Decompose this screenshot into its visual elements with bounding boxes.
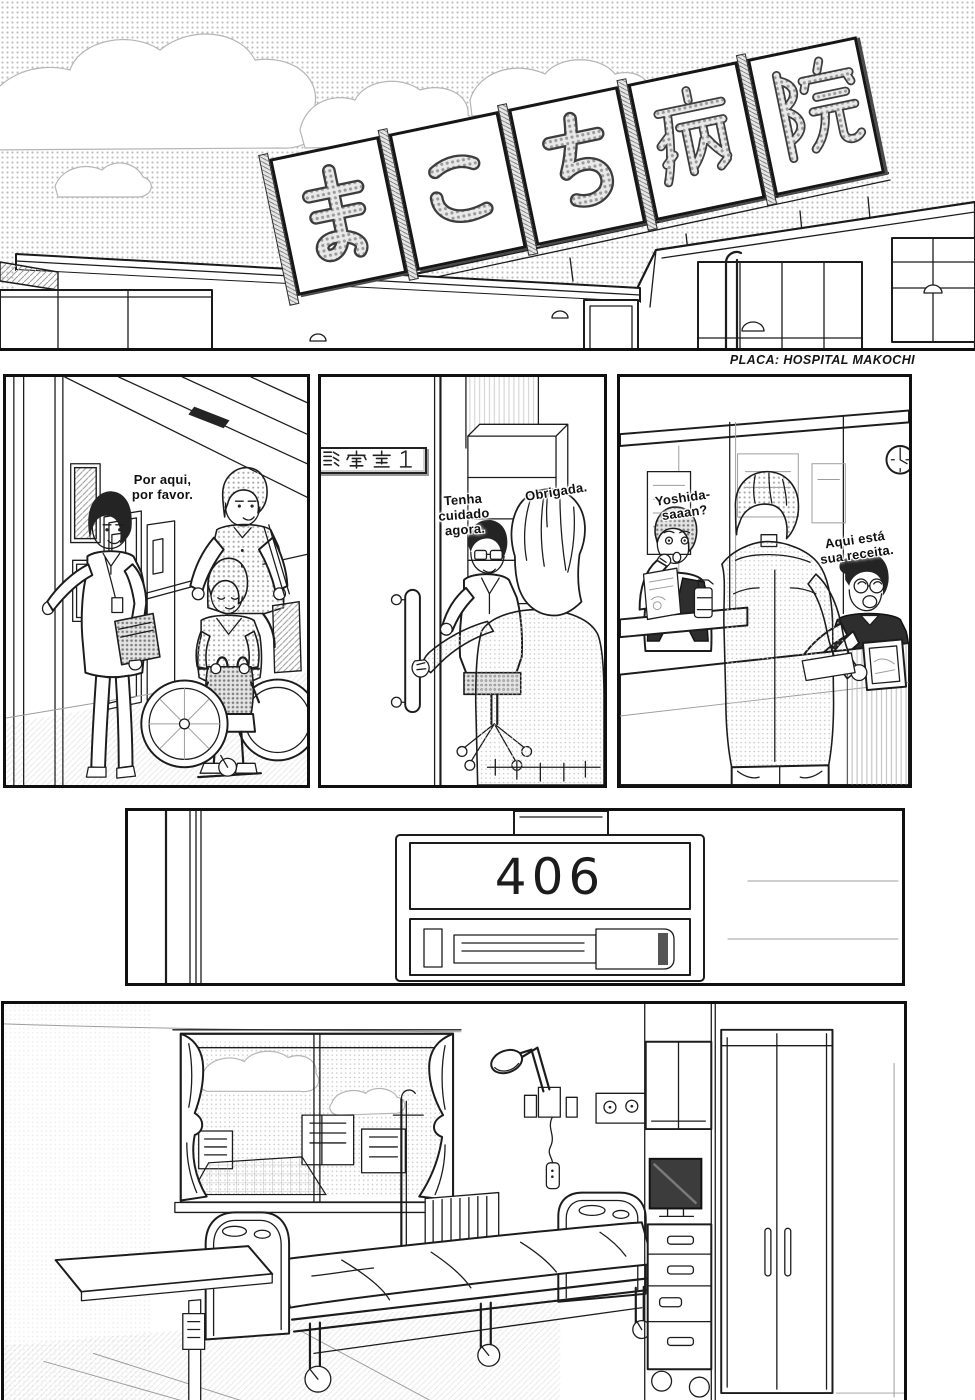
sign-char-in-drawing [759, 48, 874, 184]
panel-reception: Yoshida- saaan? Aqui está sua receita. [617, 374, 912, 788]
sign-char-ko-drawing [400, 123, 515, 259]
door-frame-lines [166, 811, 201, 983]
counter-picture-frame [863, 639, 906, 690]
exam-room-door-plate: 診察室1 [318, 447, 427, 474]
sign-char-ma-drawing [281, 148, 396, 284]
translation-caption: PLACA: HOSPITAL MAKOCHI [730, 352, 915, 368]
speech-line: por favor. [100, 488, 225, 503]
building-entrance-door [584, 300, 638, 351]
manga-page: まこち病院 ま こ ち [0, 0, 975, 1400]
panel-hospital-room [1, 1001, 907, 1400]
tv-and-drawer-unit [645, 1004, 712, 1400]
wall-detail-lines [728, 881, 898, 939]
door-plate-glyphs-drawing [318, 449, 417, 470]
speech-nurse: Por aqui, por favor. [100, 473, 225, 503]
panel-room-sign: 406 [125, 808, 905, 986]
panel-hospital-exterior: まこち病院 ま こ ち [0, 0, 975, 351]
wardrobe [715, 1004, 904, 1400]
sign-char-byou-drawing [639, 73, 754, 209]
window-with-view [173, 1030, 461, 1213]
sign-char-chi-drawing [520, 98, 635, 234]
panel-corridor: Por aqui, por favor. [3, 374, 310, 788]
reception-scene-drawing [620, 377, 909, 785]
corridor-scene-drawing [6, 377, 307, 785]
room-sign-drawing: 406 [128, 811, 902, 983]
exam-room-scene-drawing [321, 377, 604, 785]
hospital-room-scene-drawing [4, 1004, 904, 1400]
door-open [321, 377, 440, 785]
room-number-plate: 406 [396, 811, 704, 981]
room-number-text: 406 [495, 848, 605, 906]
panel-exam-room: 診察室1 Tenha cuidado agora. Obrigada. [318, 374, 607, 788]
speech-line: Por aqui, [100, 473, 225, 488]
speech-doctor: Tenha cuidado agora. [426, 490, 503, 540]
